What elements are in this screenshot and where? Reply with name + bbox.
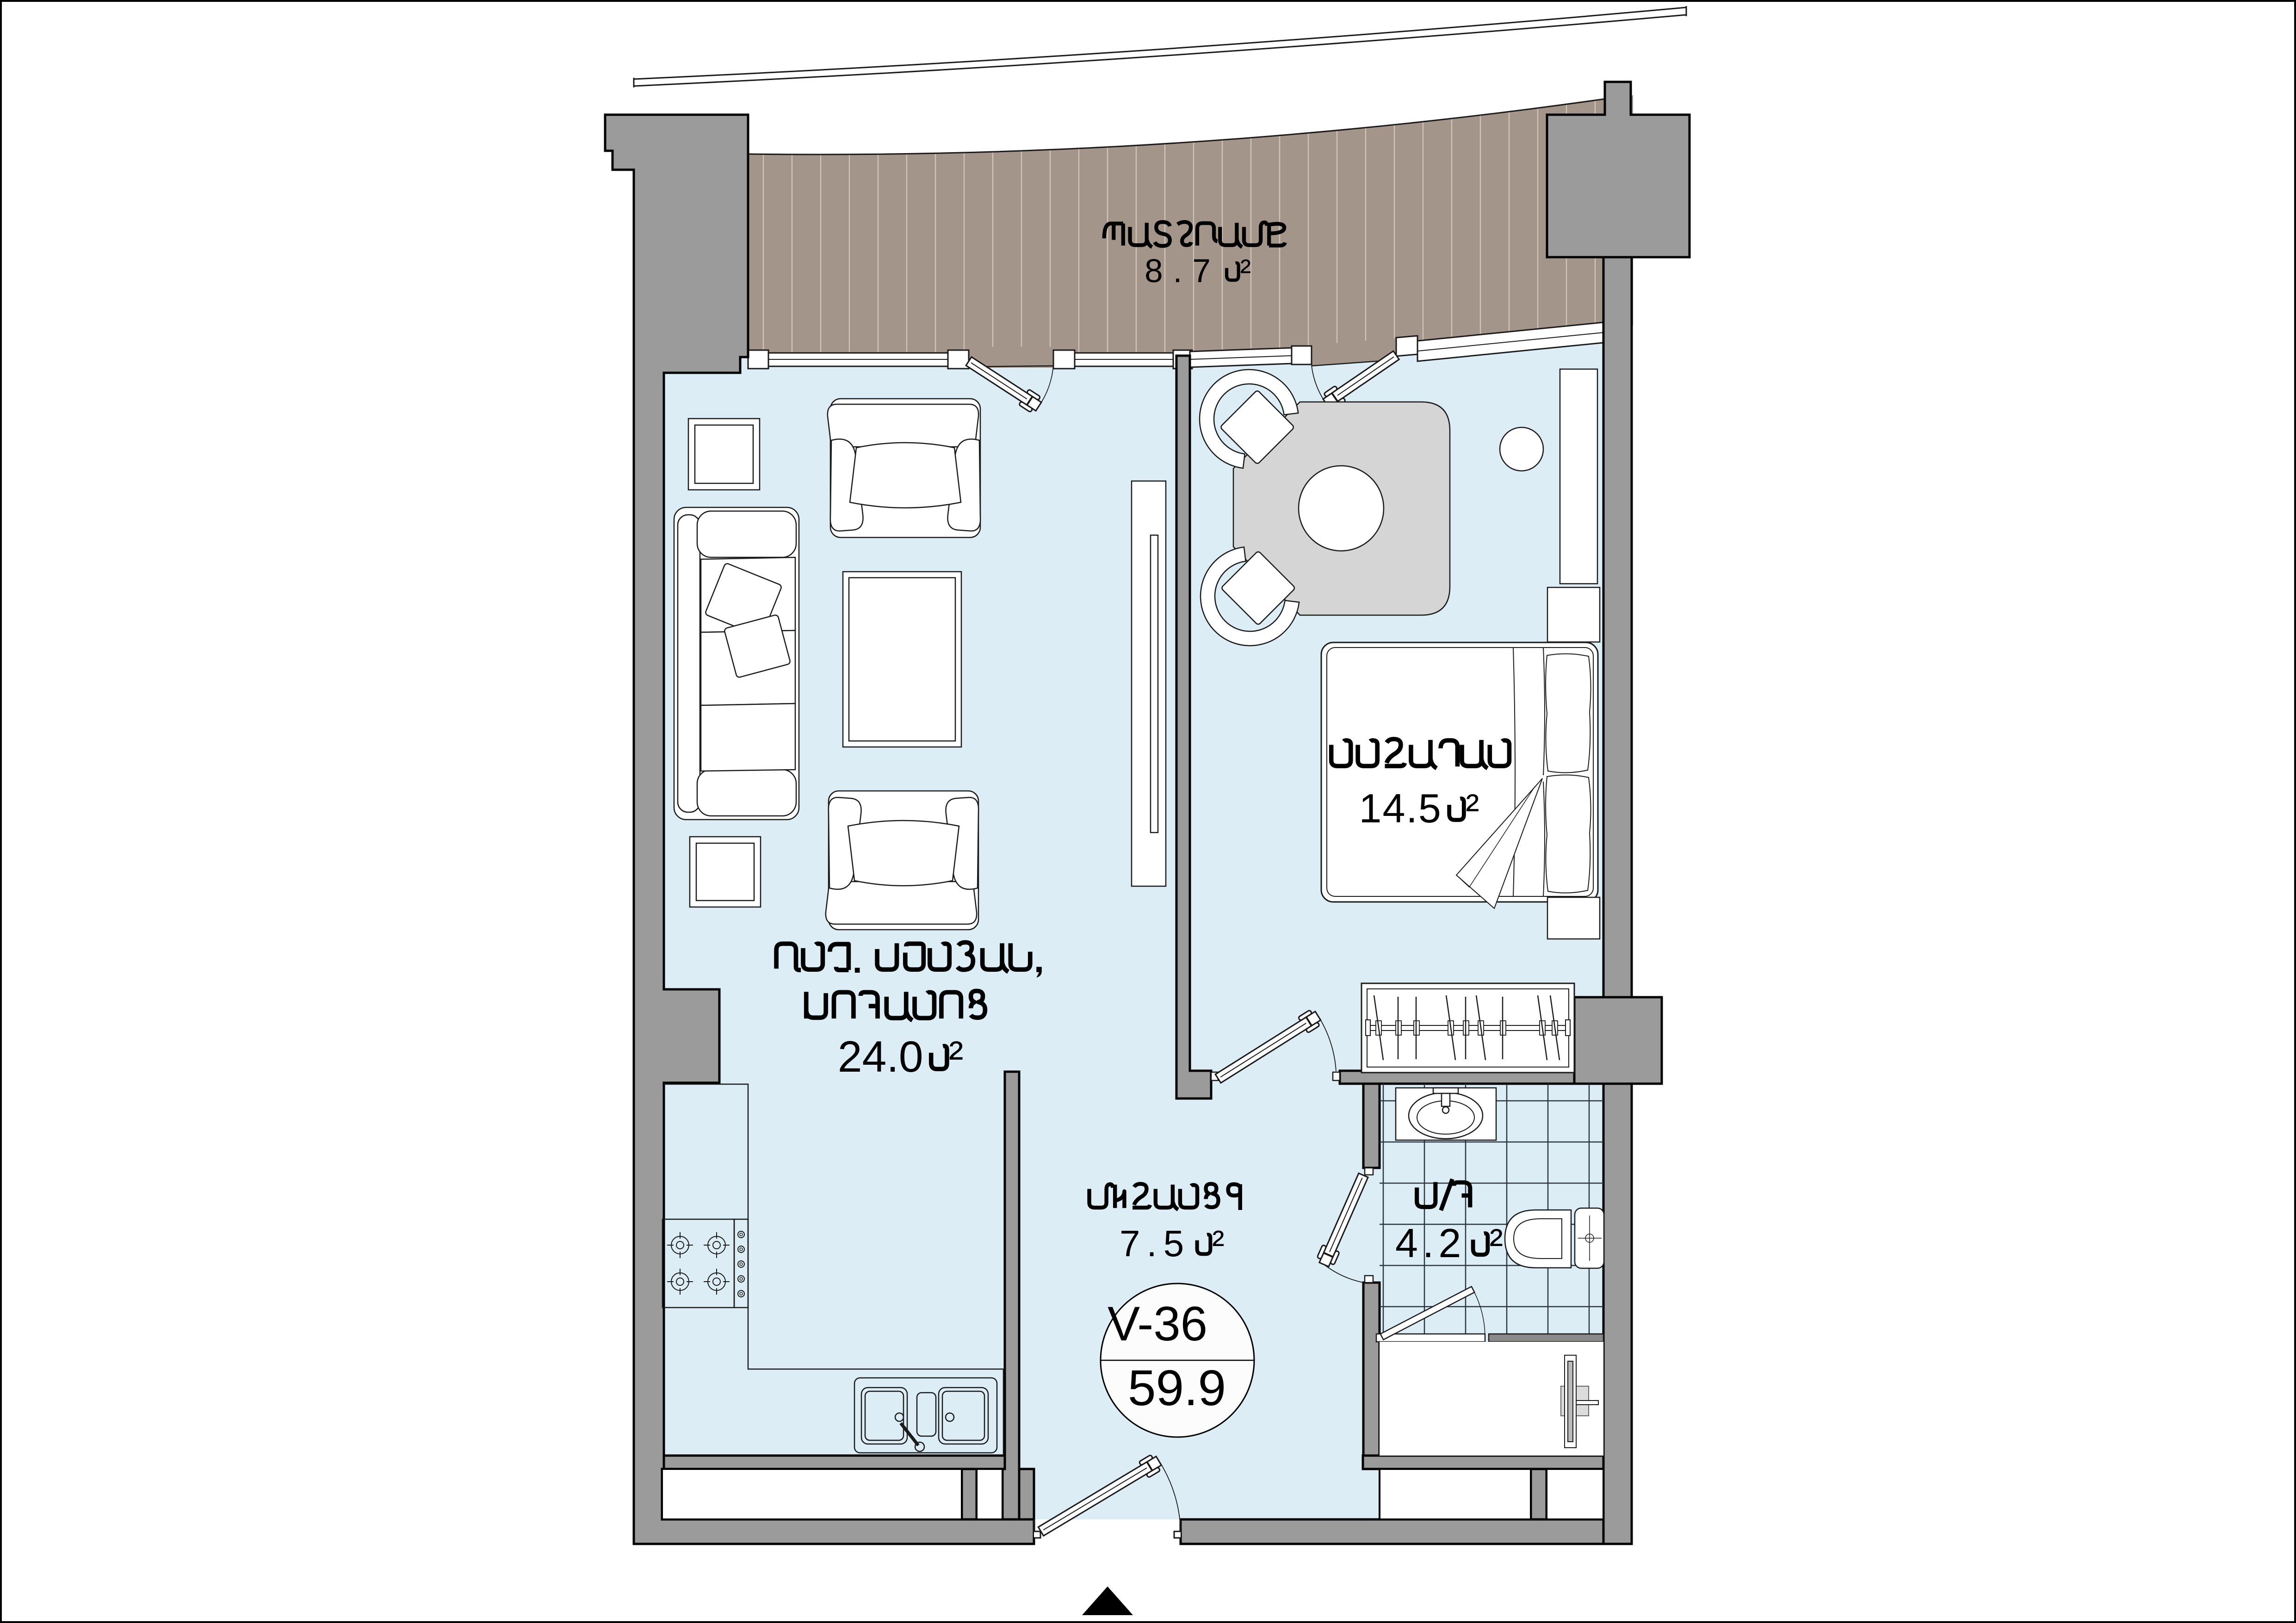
svg-text:²: ²	[1240, 253, 1251, 290]
svg-text:7: 7	[1192, 253, 1211, 290]
svg-text:V-36: V-36	[1108, 1297, 1207, 1351]
svg-text:²: ²	[1490, 1220, 1503, 1266]
svg-text:²: ²	[1466, 785, 1479, 831]
svg-text:5: 5	[1163, 1223, 1184, 1264]
svg-text:59.9: 59.9	[1128, 1360, 1226, 1416]
svg-text:7: 7	[1120, 1223, 1140, 1264]
svg-text:4: 4	[1382, 785, 1405, 831]
svg-text:²: ²	[1212, 1223, 1225, 1264]
svg-text:0: 0	[899, 1032, 923, 1081]
svg-text:5: 5	[1418, 785, 1441, 831]
svg-text:.: .	[1173, 253, 1182, 290]
svg-text:4: 4	[1395, 1220, 1418, 1266]
svg-text:²: ²	[949, 1032, 964, 1081]
svg-text:2: 2	[838, 1032, 862, 1081]
svg-text:2: 2	[1438, 1220, 1461, 1266]
svg-text:4: 4	[862, 1032, 887, 1081]
svg-text:.: .	[1423, 1220, 1434, 1266]
svg-text:.: .	[1406, 785, 1417, 831]
svg-text:.: .	[886, 1032, 898, 1081]
svg-text:8: 8	[1145, 253, 1163, 290]
svg-text:.: .	[1146, 1223, 1157, 1264]
svg-text:1: 1	[1359, 785, 1382, 831]
